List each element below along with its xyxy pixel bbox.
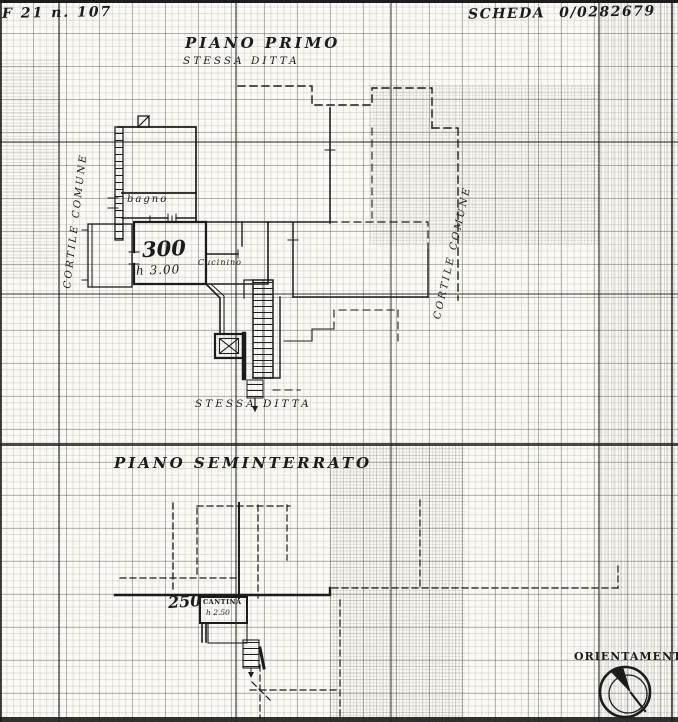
orientation-label: ORIENTAMENTO (574, 650, 678, 663)
room-label-bagno: bagno (127, 194, 168, 205)
scheda-number: 0/0282679 (559, 3, 656, 21)
first-floor-bottom-note: STESSA DITTA (195, 398, 312, 410)
room-height-first-floor: h 3.00 (136, 262, 181, 278)
room-label-cantina: CANTINA (203, 598, 242, 606)
scheda-reference: SCHEDA 0/0282679 (468, 3, 656, 22)
plan-linework-layer (0, 0, 678, 722)
basement-staircase (243, 640, 264, 678)
first-floor-building-outline (268, 108, 428, 341)
basement-title: PIANO SEMINTERRATO (114, 454, 372, 472)
first-floor-left-balcony (82, 224, 132, 287)
first-floor-staircase (244, 280, 280, 412)
room-area-first-floor: 300 (141, 235, 186, 262)
room-area-basement: 250 (167, 591, 202, 612)
first-floor-subtitle: STESSA DITTA (183, 55, 300, 67)
first-floor-plan (82, 86, 458, 412)
room-label-cucinino: Cucinino (198, 258, 242, 267)
first-floor-cucinino-room (206, 222, 268, 284)
scanned-floor-plan-sheet: F 21 n. 107 SCHEDA 0/0282679 PIANO PRIMO… (0, 0, 678, 722)
map-reference: F 21 n. 107 (2, 4, 113, 22)
first-floor-elevator (206, 284, 244, 378)
first-floor-title: PIANO PRIMO (185, 34, 340, 52)
room-height-basement: h 2.50 (206, 608, 230, 617)
compass-needle-icon (600, 667, 650, 717)
scheda-label: SCHEDA (468, 5, 545, 22)
